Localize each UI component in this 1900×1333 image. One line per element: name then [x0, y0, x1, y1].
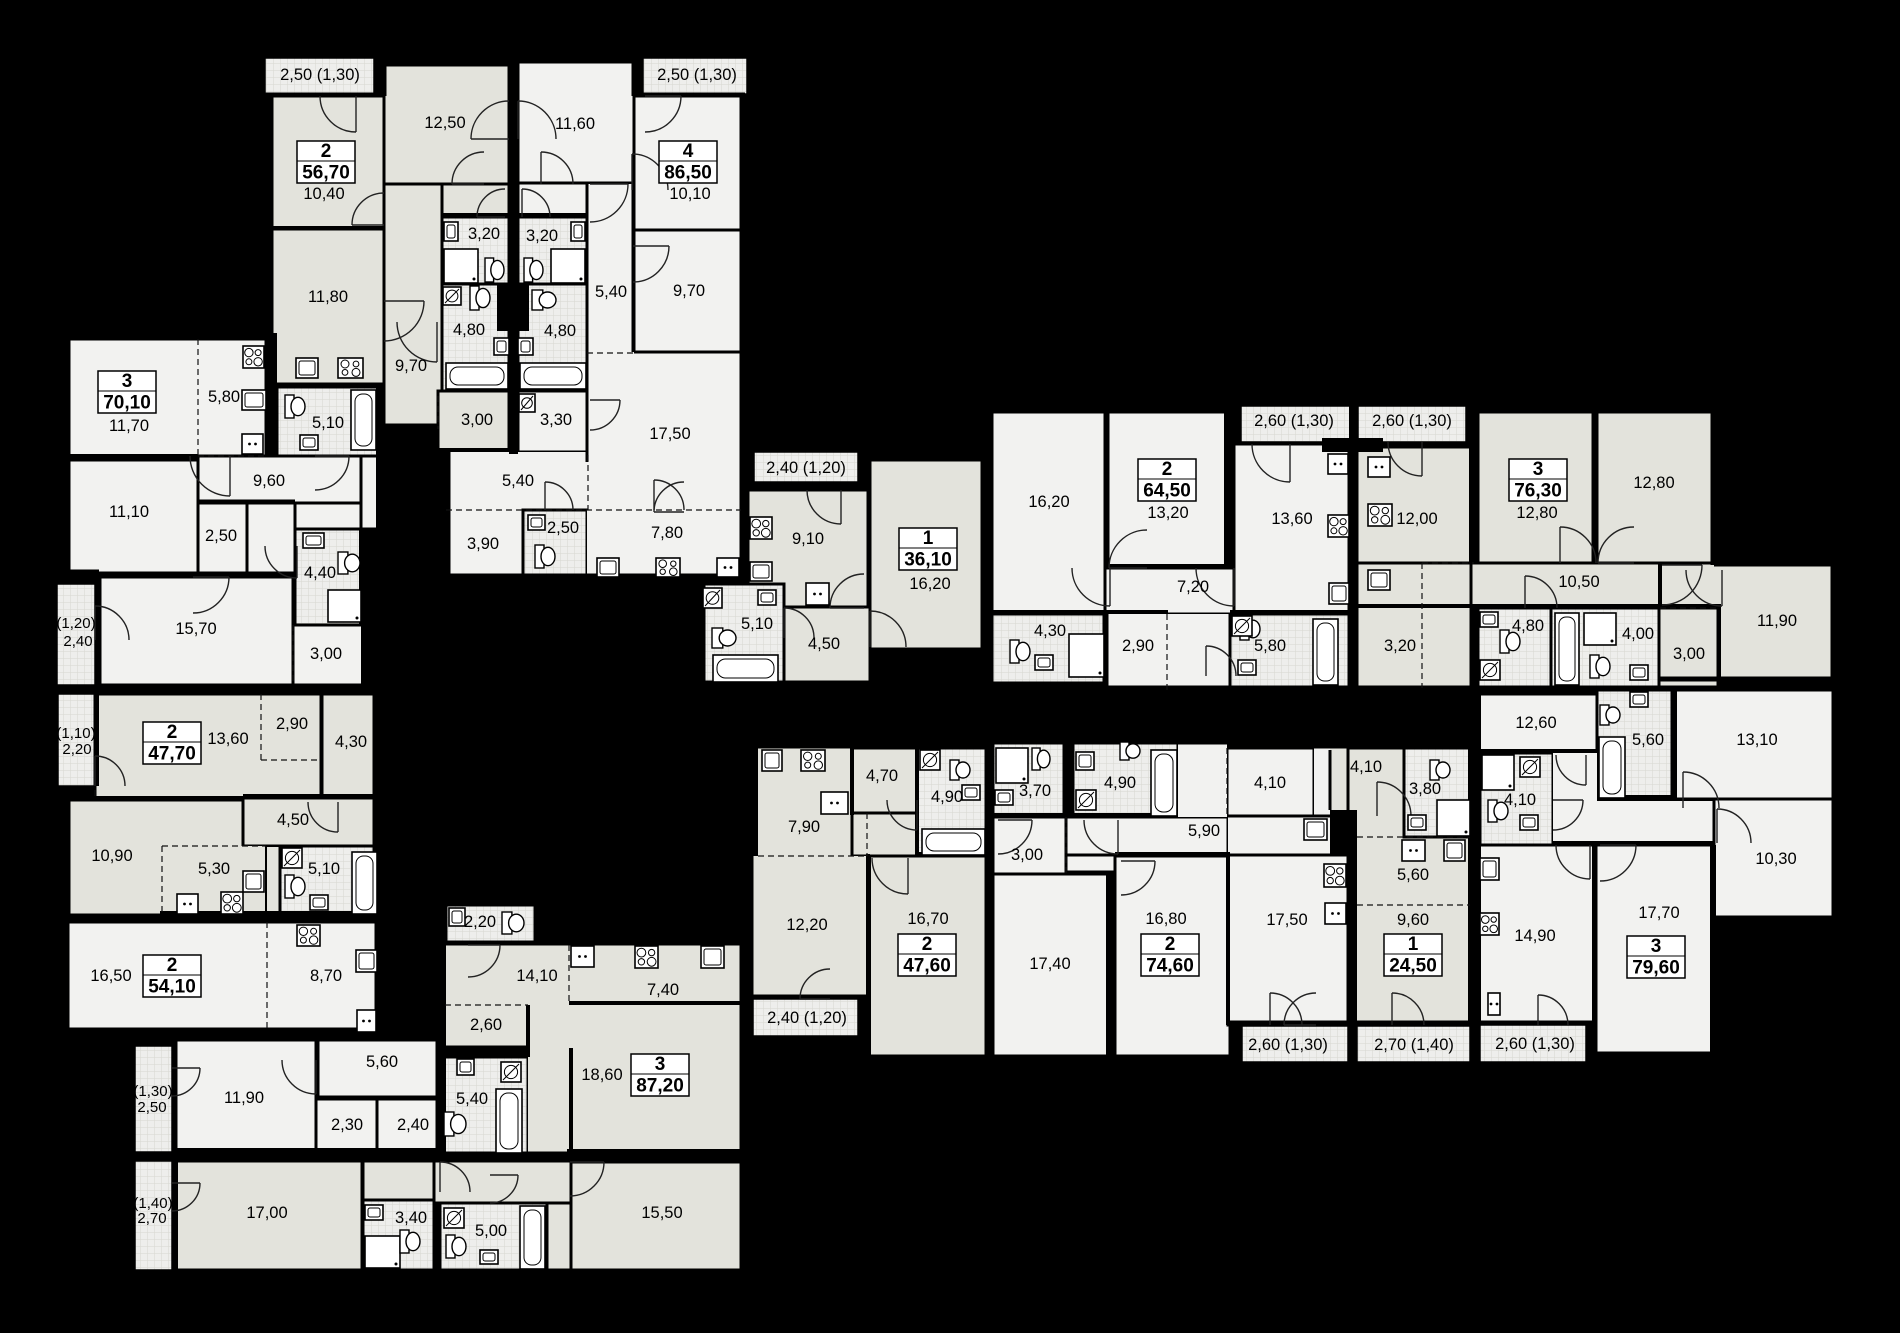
svg-text:14,10: 14,10: [516, 967, 557, 985]
svg-text:4,50: 4,50: [808, 635, 840, 653]
svg-text:13,60: 13,60: [1271, 510, 1312, 528]
svg-text:17,00: 17,00: [246, 1204, 287, 1222]
svg-text:12,20: 12,20: [786, 916, 827, 934]
svg-text:2,50: 2,50: [547, 519, 579, 537]
svg-text:11,80: 11,80: [308, 288, 348, 306]
svg-text:4,30: 4,30: [1034, 622, 1066, 640]
svg-text:2,40: 2,40: [397, 1116, 429, 1134]
svg-text:3,70: 3,70: [1019, 782, 1051, 800]
svg-text:16,80: 16,80: [1145, 910, 1186, 928]
svg-text:4,40: 4,40: [304, 564, 336, 582]
svg-text:7,20: 7,20: [1177, 578, 1209, 596]
svg-text:16,50: 16,50: [90, 967, 131, 985]
svg-text:2,40 (1,20): 2,40 (1,20): [766, 459, 846, 477]
svg-text:11,70: 11,70: [109, 417, 149, 435]
svg-text:7,90: 7,90: [788, 818, 820, 836]
svg-text:2: 2: [321, 141, 332, 162]
svg-text:2,60 (1,30): 2,60 (1,30): [1372, 412, 1452, 430]
svg-text:9,60: 9,60: [253, 472, 285, 490]
svg-text:15,70: 15,70: [175, 620, 216, 638]
svg-text:12,50: 12,50: [424, 114, 465, 132]
svg-text:17,50: 17,50: [1266, 911, 1307, 929]
svg-text:79,60: 79,60: [1632, 958, 1680, 979]
svg-text:4,10: 4,10: [1254, 774, 1286, 792]
svg-text:2,60 (1,30): 2,60 (1,30): [1248, 1036, 1328, 1054]
svg-text:4,80: 4,80: [453, 321, 485, 339]
svg-text:17,50: 17,50: [649, 425, 690, 443]
svg-text:1: 1: [1408, 934, 1419, 955]
svg-text:16,70: 16,70: [907, 910, 948, 928]
svg-text:3: 3: [1533, 459, 1544, 480]
svg-text:15,50: 15,50: [641, 1204, 682, 1222]
svg-text:9,60: 9,60: [1397, 911, 1429, 929]
svg-text:3,80: 3,80: [1409, 780, 1441, 798]
svg-text:12,60: 12,60: [1515, 714, 1556, 732]
svg-text:1: 1: [923, 528, 934, 549]
svg-text:3,20: 3,20: [468, 225, 500, 243]
svg-text:2,70 (1,40): 2,70 (1,40): [1374, 1036, 1454, 1054]
svg-text:7,80: 7,80: [651, 524, 683, 542]
svg-text:10,40: 10,40: [303, 185, 344, 203]
svg-text:9,70: 9,70: [673, 282, 705, 300]
svg-text:12,00: 12,00: [1396, 510, 1437, 528]
svg-text:4,80: 4,80: [1512, 617, 1544, 635]
svg-text:5,80: 5,80: [208, 388, 240, 406]
svg-text:2,90: 2,90: [1122, 637, 1154, 655]
svg-text:56,70: 56,70: [302, 163, 350, 184]
svg-text:8,70: 8,70: [310, 967, 342, 985]
svg-text:5,60: 5,60: [366, 1053, 398, 1071]
svg-text:54,10: 54,10: [148, 977, 196, 998]
svg-text:4,50: 4,50: [277, 811, 309, 829]
svg-text:4: 4: [683, 141, 694, 162]
svg-text:47,60: 47,60: [903, 956, 951, 977]
svg-text:2,40 (1,20): 2,40 (1,20): [767, 1009, 847, 1027]
svg-text:70,10: 70,10: [103, 393, 151, 414]
svg-text:9,70: 9,70: [395, 357, 427, 375]
svg-text:2: 2: [1165, 934, 1176, 955]
svg-text:4,30: 4,30: [335, 733, 367, 751]
svg-text:2: 2: [922, 934, 933, 955]
svg-text:3,40: 3,40: [395, 1209, 427, 1227]
svg-text:5,30: 5,30: [198, 860, 230, 878]
svg-text:16,20: 16,20: [909, 575, 950, 593]
svg-text:17,70: 17,70: [1638, 904, 1679, 922]
svg-text:13,10: 13,10: [1736, 731, 1777, 749]
svg-text:10,30: 10,30: [1755, 850, 1796, 868]
svg-text:(1,20): (1,20): [56, 615, 95, 632]
svg-text:5,10: 5,10: [312, 414, 344, 432]
svg-text:2,20: 2,20: [464, 913, 496, 931]
svg-text:9,10: 9,10: [792, 530, 824, 548]
svg-text:5,40: 5,40: [595, 283, 627, 301]
svg-text:2,50 (1,30): 2,50 (1,30): [280, 66, 360, 84]
svg-text:17,40: 17,40: [1029, 955, 1070, 973]
svg-text:87,20: 87,20: [636, 1076, 684, 1097]
svg-text:3,20: 3,20: [1384, 637, 1416, 655]
svg-text:11,90: 11,90: [224, 1089, 264, 1107]
svg-text:11,10: 11,10: [109, 503, 149, 521]
svg-text:3,00: 3,00: [1673, 645, 1705, 663]
svg-text:64,50: 64,50: [1143, 481, 1191, 502]
svg-text:2: 2: [167, 955, 178, 976]
svg-text:(1,30): (1,30): [133, 1083, 172, 1100]
svg-text:24,50: 24,50: [1389, 956, 1437, 977]
svg-text:3,00: 3,00: [461, 411, 493, 429]
svg-text:3,30: 3,30: [540, 411, 572, 429]
svg-text:12,80: 12,80: [1516, 504, 1557, 522]
svg-text:2,40: 2,40: [63, 633, 92, 650]
svg-text:2: 2: [167, 722, 178, 743]
svg-text:4,10: 4,10: [1350, 758, 1382, 776]
svg-text:7,40: 7,40: [647, 981, 679, 999]
svg-text:3,20: 3,20: [526, 227, 558, 245]
svg-text:5,40: 5,40: [502, 472, 534, 490]
svg-text:4,90: 4,90: [931, 788, 963, 806]
svg-text:13,60: 13,60: [207, 730, 248, 748]
svg-text:18,60: 18,60: [581, 1066, 622, 1084]
svg-text:4,90: 4,90: [1104, 774, 1136, 792]
svg-text:(1,10): (1,10): [56, 725, 95, 742]
svg-text:10,50: 10,50: [1558, 573, 1599, 591]
svg-text:3,00: 3,00: [1011, 846, 1043, 864]
svg-text:2,20: 2,20: [62, 741, 91, 758]
svg-text:2,30: 2,30: [331, 1116, 363, 1134]
svg-text:74,60: 74,60: [1146, 956, 1194, 977]
svg-text:5,10: 5,10: [308, 860, 340, 878]
svg-text:2,50 (1,30): 2,50 (1,30): [657, 66, 737, 84]
svg-text:10,90: 10,90: [91, 847, 132, 865]
svg-text:12,80: 12,80: [1633, 474, 1674, 492]
svg-text:2,70: 2,70: [137, 1210, 166, 1227]
svg-text:5,60: 5,60: [1397, 866, 1429, 884]
svg-text:10,10: 10,10: [669, 185, 710, 203]
svg-text:3,90: 3,90: [467, 535, 499, 553]
svg-text:36,10: 36,10: [904, 550, 952, 571]
svg-text:76,30: 76,30: [1514, 481, 1562, 502]
svg-text:4,10: 4,10: [1504, 791, 1536, 809]
svg-text:3,00: 3,00: [310, 645, 342, 663]
svg-text:16,20: 16,20: [1028, 493, 1069, 511]
svg-text:4,80: 4,80: [544, 322, 576, 340]
svg-text:5,80: 5,80: [1254, 637, 1286, 655]
svg-text:5,00: 5,00: [475, 1222, 507, 1240]
svg-text:4,00: 4,00: [1622, 625, 1654, 643]
svg-text:14,90: 14,90: [1514, 927, 1555, 945]
svg-text:3: 3: [122, 371, 133, 392]
svg-text:2,50: 2,50: [205, 527, 237, 545]
svg-text:2: 2: [1162, 459, 1173, 480]
svg-text:2,50: 2,50: [137, 1099, 166, 1116]
svg-text:11,90: 11,90: [1757, 612, 1797, 630]
svg-text:5,90: 5,90: [1188, 822, 1220, 840]
svg-text:2,60 (1,30): 2,60 (1,30): [1254, 412, 1334, 430]
svg-text:2,60 (1,30): 2,60 (1,30): [1495, 1035, 1575, 1053]
svg-text:2,60: 2,60: [470, 1016, 502, 1034]
svg-text:47,70: 47,70: [148, 744, 196, 765]
svg-text:13,20: 13,20: [1147, 504, 1188, 522]
svg-text:5,40: 5,40: [456, 1090, 488, 1108]
svg-text:2,90: 2,90: [276, 715, 308, 733]
svg-text:86,50: 86,50: [664, 163, 712, 184]
svg-text:11,60: 11,60: [555, 115, 595, 133]
svg-text:5,60: 5,60: [1632, 731, 1664, 749]
svg-text:4,70: 4,70: [866, 767, 898, 785]
svg-text:5,10: 5,10: [741, 615, 773, 633]
svg-text:3: 3: [1651, 936, 1662, 957]
svg-text:3: 3: [655, 1054, 666, 1075]
